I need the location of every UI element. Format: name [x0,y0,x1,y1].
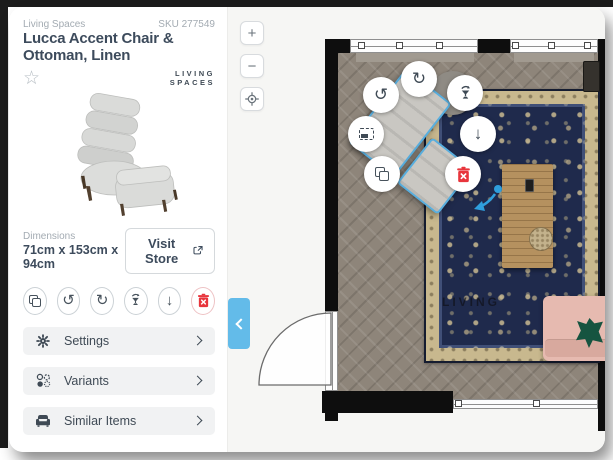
rotate-ccw-button[interactable]: ↺ [57,287,81,315]
accordion-settings[interactable]: Settings [23,327,215,355]
chevron-left-icon [235,318,246,329]
arrow-down-icon: ↓ [474,124,483,144]
canvas-marquee-select-button[interactable] [348,116,384,152]
pink-sofa[interactable] [543,296,605,361]
move-down-button[interactable]: ↓ [158,287,182,315]
screen-edge-top [0,0,613,7]
trash-delete-icon [197,293,210,308]
minus-icon: − [248,58,257,75]
wall-top-mid [478,39,510,53]
accordion-similar-items[interactable]: Similar Items [23,407,215,435]
product-image [44,90,194,222]
accordion-settings-label: Settings [64,334,194,348]
variants-swatches-icon [35,373,51,388]
remote-on-table [525,179,534,192]
accordion-similar-items-label: Similar Items [64,414,194,428]
canvas-rotate-ccw-button[interactable]: ↺ [363,77,399,113]
external-link-icon [193,244,203,257]
woven-tray [529,227,553,251]
sofa-icon [35,414,51,427]
sofa-seat [545,339,605,357]
replace-item-icon [457,85,474,102]
duplicate-icon [375,167,389,181]
chevron-right-icon [193,336,203,346]
coffee-table[interactable] [502,164,553,268]
rotate-cw-button[interactable]: ↻ [90,287,114,315]
dimensions-value: 71cm x 153cm x 94cm [23,243,125,271]
visit-store-button[interactable]: Visit Store [125,228,215,274]
gear-icon [35,334,51,348]
sidebar-accordion: Settings Variants [23,327,215,435]
replace-item-icon [128,293,143,308]
rotate-ccw-icon: ↺ [62,293,75,308]
door-swing-arc [259,313,331,385]
wall-left [325,39,338,311]
dimensions-label: Dimensions [23,231,125,242]
wall-bottom [322,391,453,413]
sidebar-collapse-button[interactable] [228,298,250,349]
radiator-2 [514,53,594,62]
arrow-down-icon: ↓ [166,293,174,308]
accordion-variants-label: Variants [64,374,194,388]
brand-label: Living Spaces [23,19,85,30]
zoom-in-button[interactable]: + [240,21,264,45]
rotate-cw-icon: ↻ [412,69,426,89]
duplicate-icon [29,295,41,307]
plus-icon: + [248,25,257,42]
replace-item-button[interactable] [124,287,148,315]
favorite-star-icon[interactable]: ☆ [23,69,40,88]
product-sidebar: Living Spaces SKU 277549 Lucca Accent Ch… [9,7,227,452]
dark-floor-object[interactable] [583,61,600,92]
delete-button[interactable] [191,287,215,315]
door-jamb [325,311,338,391]
room-planner-window: Living Spaces SKU 277549 Lucca Accent Ch… [9,7,605,452]
accordion-variants[interactable]: Variants [23,367,215,395]
window-top-1 [350,39,478,53]
rotate-cw-icon: ↻ [96,293,109,308]
canvas-rotate-cw-button[interactable]: ↻ [401,61,437,97]
canvas-replace-item-button[interactable] [447,75,483,111]
product-title: Lucca Accent Chair & Ottoman, Linen [23,31,215,65]
chevron-right-icon [193,416,203,426]
screen-edge-left [0,0,8,448]
marquee-select-icon [359,128,374,140]
rug-watermark: LIVING [442,295,500,309]
item-actions-toolbar: ↺ ↻ ↓ [23,287,215,315]
recenter-button[interactable] [240,87,264,111]
crosshair-locate-icon [245,92,259,106]
window-top-2 [510,39,598,53]
canvas-delete-button[interactable] [445,156,481,192]
canvas-duplicate-button[interactable] [364,156,400,192]
zoom-out-button[interactable]: − [240,54,264,78]
window-bottom [453,399,598,409]
canvas-move-down-button[interactable]: ↓ [460,116,496,152]
living-spaces-logo: LIVING SPACES [170,69,215,88]
chevron-right-icon [193,376,203,386]
sku-label: SKU 277549 [158,19,215,30]
rotate-ccw-icon: ↺ [374,85,388,105]
trash-delete-icon [456,166,471,183]
floorplan-canvas[interactable]: LIVING ↺ ↻ [227,7,605,452]
dimensions-block: Dimensions 71cm x 153cm x 94cm [23,231,125,271]
duplicate-button[interactable] [23,287,47,315]
